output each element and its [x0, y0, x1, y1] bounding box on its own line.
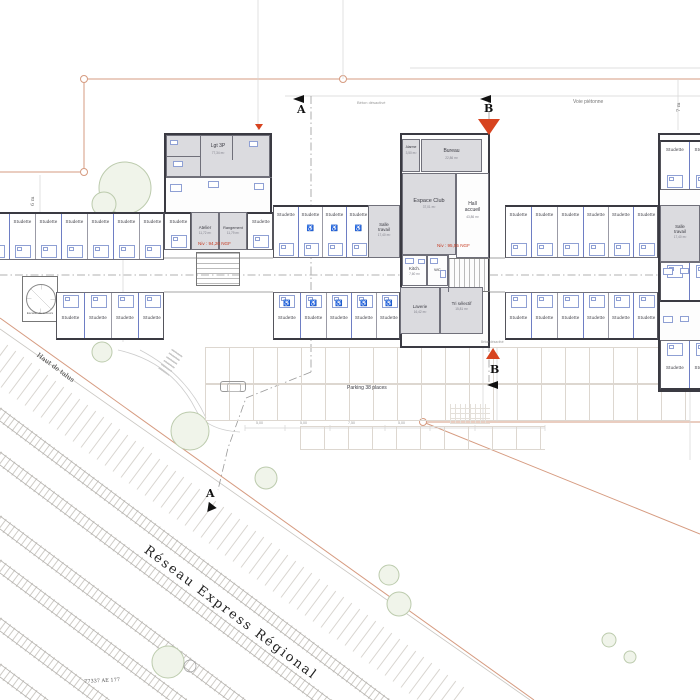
wheelchair-icon: ♿ [299, 226, 322, 232]
studette-cell: Studette♿ [274, 293, 300, 338]
room-area: 17,40 m² [378, 233, 391, 237]
room-label: Atelier [199, 225, 211, 230]
studette-cell: Studette [165, 214, 192, 249]
label-parking: Parking 38 places [347, 385, 387, 391]
sink-icon [539, 297, 544, 301]
room-label: Bureau [443, 149, 459, 155]
studette-cell: Studette [689, 142, 700, 189]
studette-cell [0, 214, 9, 259]
studette-cell [689, 263, 700, 300]
studette-cell: Studette [57, 293, 84, 338]
sink-icon [616, 245, 621, 249]
bathroom-pod [563, 243, 579, 256]
studette-label: Studette [584, 315, 608, 320]
sink-icon [616, 297, 621, 301]
room-laverie: Laverie16,42 m² [400, 287, 440, 334]
bathroom-pod [0, 245, 5, 258]
bathroom-pod [667, 175, 683, 188]
studette-label: Studette [661, 147, 689, 152]
bathroom-pod [63, 295, 79, 308]
studette-label: Studette [377, 315, 401, 320]
bathroom-pod [511, 243, 527, 256]
section-b-arrow-bottom [487, 381, 498, 389]
floor-plan-canvas: Escalier de secours StudetteStudetteStud… [0, 0, 700, 700]
studette-label: Studette [165, 219, 192, 224]
studette-label: Studette [299, 212, 322, 217]
studette-cell: Studette [9, 214, 35, 259]
room-area: 17,40 m² [674, 235, 687, 239]
sink-icon [17, 247, 22, 251]
bathroom-pod [589, 243, 605, 256]
room-row: StudetteStudette [660, 140, 700, 190]
bathroom-pod [614, 243, 630, 256]
wheelchair-icon: ♿ [347, 226, 370, 232]
bathroom-pod [304, 243, 319, 256]
section-a-arrow-top [293, 95, 304, 103]
sink-icon [147, 297, 152, 301]
studette-label: Studette [352, 315, 376, 320]
studette-cell: Studette [608, 207, 633, 257]
section-b-red-triangle-top [478, 119, 500, 135]
studette-label: Studette [661, 365, 689, 370]
bathroom-pod [93, 245, 109, 258]
bathroom-pod [639, 243, 655, 256]
studette-label: Studette [57, 315, 84, 320]
spiral-stair-icon [26, 284, 56, 314]
studette-cell: Studette [35, 214, 61, 259]
sink-icon [539, 245, 544, 249]
bathroom-pod [537, 243, 553, 256]
car-outline [220, 381, 246, 392]
level-label-center: Niv : 95,55 NGF [437, 243, 470, 248]
fixture [173, 161, 183, 167]
studette-cell: Studette [633, 207, 659, 257]
fixture [405, 258, 414, 264]
wheelchair-icon: ♿ [323, 226, 346, 232]
room-row: StudetteStudette♿Studette♿Studette♿ [273, 205, 369, 258]
fixture [170, 140, 178, 145]
bathroom-pod [639, 295, 655, 308]
bathroom-pod [171, 235, 187, 248]
room-area: 15,81 m² [455, 307, 468, 311]
sink-icon [565, 297, 570, 301]
studette-cell: Studette [531, 207, 557, 257]
studette-cell: Studette [113, 214, 139, 259]
studette-label: Studette [140, 219, 165, 224]
studette-cell: Studette [583, 293, 608, 338]
bathroom-pod [41, 245, 57, 258]
studette-label: Studette [85, 315, 111, 320]
studette-label: Studette [506, 315, 531, 320]
studette-label: Studette [139, 315, 165, 320]
room-area: 16,42 m² [414, 310, 427, 314]
sink-icon [93, 297, 98, 301]
studette-label: Studette [532, 212, 557, 217]
studette-label: Studette [112, 315, 138, 320]
label-voie-pietonne: Voie piétonne [573, 99, 603, 105]
studette-label: Studette [532, 315, 557, 320]
studette-label: Studette [248, 219, 274, 224]
studette-cell: Studette [531, 293, 557, 338]
studette-label: Studette [558, 212, 583, 217]
bathroom-pod [145, 245, 161, 258]
studette-label: Studette [36, 219, 61, 224]
fixture [663, 316, 673, 323]
studette-label: Studette [690, 365, 700, 370]
sink-icon [95, 247, 100, 251]
dim-tick-4: 5,00 [398, 421, 405, 425]
studette-cell: Studette [274, 207, 298, 257]
room-label: Lgt 3P [211, 144, 225, 150]
bathroom-pod [67, 245, 83, 258]
room-salle_travail: Salle travail17,40 m² [660, 205, 700, 262]
sink-icon [121, 247, 126, 251]
studette-cell: Studette♿ [351, 293, 376, 338]
studette-label: Studette [10, 219, 35, 224]
studette-label: Studette [634, 315, 659, 320]
sink-icon [330, 245, 335, 249]
section-a-letter-top: A [297, 103, 306, 116]
sink-icon [120, 297, 125, 301]
room-area: 3,50 m² [406, 151, 417, 155]
studette-label: Studette [301, 315, 326, 320]
sink-icon [669, 177, 674, 181]
partition-line [200, 135, 201, 177]
fixture [170, 184, 182, 192]
room-label: Hall accueil [461, 202, 485, 214]
room-area: 43,86 m² [466, 215, 479, 219]
dim-tick-3: 7,50 [348, 421, 355, 425]
rail-line [0, 603, 116, 700]
studette-label: Studette [609, 315, 633, 320]
dim-7m: 7 m [676, 102, 682, 112]
studette-cell: Studette♿ [298, 207, 322, 257]
studette-cell: Studette [138, 293, 165, 338]
sink-icon [591, 245, 596, 249]
fixture [418, 259, 425, 264]
wheelchair-icon: ♿ [327, 301, 351, 307]
studette-label: Studette [88, 219, 113, 224]
sink-icon [69, 247, 74, 251]
bathroom-pod [145, 295, 161, 308]
room-row: StudetteStudetteStudetteStudetteStudette… [505, 205, 658, 258]
bathroom-pod [15, 245, 31, 258]
bench-mark [255, 124, 263, 130]
studette-cell: Studette [633, 293, 659, 338]
bathroom-pod [696, 175, 700, 188]
studette-cell: Studette♿ [346, 207, 370, 257]
studette-cell: Studette [61, 214, 87, 259]
bathroom-pod [589, 295, 605, 308]
partition-line [427, 255, 428, 286]
sink-icon [641, 245, 646, 249]
studette-label: Studette [506, 212, 531, 217]
room-area: 7,60 m² [409, 272, 420, 276]
room-tri: Tri sélectif15,81 m² [440, 287, 483, 334]
sink-icon [255, 237, 260, 241]
sink-icon [306, 245, 311, 249]
bathroom-pod [537, 295, 553, 308]
room-area: 11,79 m² [227, 231, 239, 235]
fixture [680, 268, 689, 274]
wheelchair-icon: ♿ [352, 301, 376, 307]
studette-cell: Studette [139, 214, 165, 259]
room-bureau: Bureau22,86 m² [421, 139, 482, 172]
wheelchair-icon: ♿ [377, 301, 401, 307]
partition-line [448, 255, 449, 292]
room-label: Laverie [413, 304, 427, 309]
sink-icon [641, 297, 646, 301]
room-row: StudetteStudetteStudetteStudetteStudette… [0, 212, 164, 260]
wheelchair-icon: ♿ [301, 301, 326, 307]
section-a-letter-bottom: A [206, 487, 215, 500]
room-row: Studette [247, 212, 273, 250]
label-beton-desactive-b: Béton désactivé [481, 340, 504, 344]
partition-line [232, 135, 233, 160]
studette-cell: Studette♿ [300, 293, 326, 338]
fixture [663, 268, 673, 275]
sink-icon [173, 237, 178, 241]
sink-icon [513, 297, 518, 301]
section-b-letter-bottom: B [490, 363, 499, 376]
room-label: Alarme [406, 146, 417, 150]
room-row: StudetteStudetteStudetteStudette [56, 292, 164, 340]
room-area: 11,72 m² [199, 231, 211, 235]
studette-cell: Studette [111, 293, 138, 338]
dim-6m: 6 m [30, 196, 36, 206]
studette-cell: Studette♿ [322, 207, 346, 257]
studette-cell: Studette [84, 293, 111, 338]
bathroom-pod [118, 295, 134, 308]
dim-tick-1: 5,00 [256, 421, 263, 425]
wheelchair-icon: ♿ [274, 301, 300, 307]
bathroom-pod [667, 343, 683, 356]
bathroom-pod [279, 243, 294, 256]
studette-label: Studette [690, 147, 700, 152]
bathroom-pod [511, 295, 527, 308]
room-label: Salle travail [373, 222, 395, 232]
studette-label: Studette [347, 212, 370, 217]
studette-label: Studette [323, 212, 346, 217]
bathroom-pod [696, 343, 700, 356]
sink-icon [354, 245, 359, 249]
fixture [208, 181, 219, 188]
studette-label: Studette [114, 219, 139, 224]
bathroom-pod [614, 295, 630, 308]
studette-label: Studette [274, 315, 300, 320]
dim-tick-2: 5,00 [300, 421, 307, 425]
studette-cell: Studette [689, 341, 700, 388]
studette-cell: Studette♿ [376, 293, 401, 338]
bathroom-pod [696, 265, 700, 278]
room-label: Tri sélectif [451, 301, 473, 306]
section-b-letter-top: B [484, 102, 493, 115]
room-row: Studette [164, 212, 191, 250]
bathroom-pod [91, 295, 107, 308]
studette-cell: Studette [557, 293, 583, 338]
fixture [249, 141, 258, 147]
parking-band-south [205, 384, 690, 421]
room-label: Rangement [223, 226, 243, 230]
sink-icon [565, 245, 570, 249]
room-label: Salle travail [669, 224, 691, 234]
sink-icon [513, 245, 518, 249]
sink-icon [43, 247, 48, 251]
paved-pad [450, 404, 490, 424]
section-b-red-triangle-bottom [486, 348, 500, 359]
room-salle_travail: Salle travail17,40 m² [368, 205, 400, 258]
studette-label: Studette [62, 219, 87, 224]
room-label: Espace Club [413, 198, 444, 204]
studette-cell: Studette [506, 293, 531, 338]
studette-label: Studette [634, 212, 659, 217]
parking-band-lower [300, 426, 545, 450]
studette-label: Studette [584, 212, 608, 217]
room-area: 77,34 m² [212, 151, 225, 155]
fixture [440, 270, 446, 278]
room-alarme: Alarme3,50 m² [402, 139, 420, 172]
studette-cell: Studette♿ [326, 293, 351, 338]
fixture [680, 316, 689, 322]
room-label: Kitch. [409, 266, 420, 271]
sink-icon [147, 247, 152, 251]
room-row: Studette♿Studette♿Studette♿Studette♿Stud… [273, 292, 400, 340]
sink-icon [281, 245, 286, 249]
room-area: 22,86 m² [445, 156, 458, 160]
fixture [430, 258, 438, 264]
studette-cell: Studette [506, 207, 531, 257]
bathroom-pod [563, 295, 579, 308]
fixture [254, 183, 264, 190]
studette-cell: Studette [661, 341, 689, 388]
studette-label: Studette [274, 212, 298, 217]
partition-line [166, 156, 200, 157]
parking-band-north [205, 347, 690, 384]
room-row: StudetteStudette [660, 340, 700, 390]
bathroom-pod [352, 243, 367, 256]
studette-label: Studette [558, 315, 583, 320]
sink-icon [65, 297, 70, 301]
bathroom-pod [119, 245, 135, 258]
studette-label: Studette [609, 212, 633, 217]
bathroom-pod [253, 235, 269, 248]
room-area: 37,01 m² [423, 205, 436, 209]
label-beton-desactive-top: Béton désactivé [357, 100, 385, 105]
room-row: StudetteStudetteStudetteStudetteStudette… [505, 292, 658, 340]
studette-cell: Studette [583, 207, 608, 257]
sink-icon [669, 345, 674, 349]
studette-cell: Studette [661, 142, 689, 189]
sink-icon [591, 297, 596, 301]
label-escalier-secours: Escalier de secours [24, 312, 56, 316]
studette-cell: Studette [248, 214, 274, 249]
studette-cell: Studette [557, 207, 583, 257]
studette-cell: Studette [608, 293, 633, 338]
partition-line [166, 177, 272, 178]
stair-left [196, 252, 240, 286]
bathroom-pod [328, 243, 343, 256]
studette-label: Studette [327, 315, 351, 320]
studette-cell: Studette [87, 214, 113, 259]
level-label-left: Niv : 94,20 NGF [198, 241, 231, 246]
